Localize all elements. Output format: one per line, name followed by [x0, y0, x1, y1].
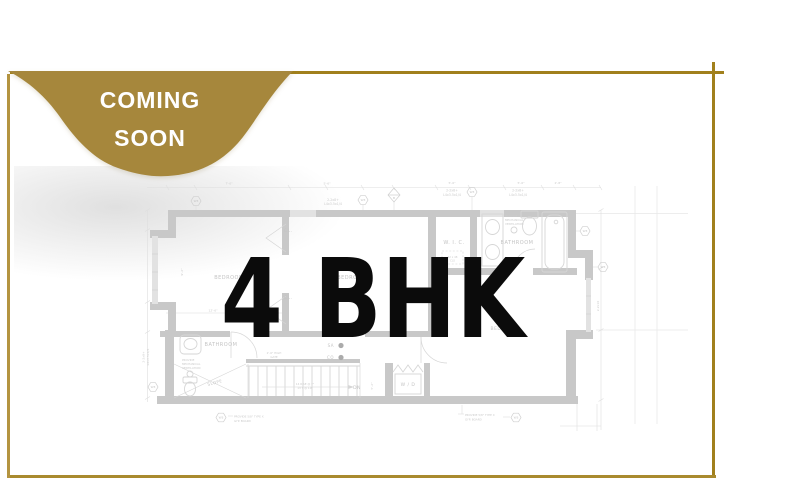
wall-tag: W3 — [219, 416, 224, 420]
gyp-note: GYP. BOARD — [234, 419, 251, 423]
beam-note: L4x3.5x1/4 — [146, 349, 150, 366]
label-closet-upper: CL. — [284, 228, 293, 234]
stair-note: 13 T @ 10" — [297, 386, 313, 390]
dim-text: 5'-6" — [323, 182, 331, 186]
coming-soon-card: W3 W3 W3 W3 W3 W3 W3 W3 B BEDROOM BEDROO… — [0, 0, 800, 500]
dim-text: 5'-6" — [517, 181, 525, 185]
wall-tag: W3 — [514, 416, 519, 420]
label-washer-dryer: W / D — [401, 382, 416, 388]
badge-line-1: COMING — [45, 85, 255, 115]
plan-grid-lines — [576, 186, 688, 424]
vent-note: VENTILATION — [182, 366, 200, 370]
dim-text: 7'-6" — [153, 304, 161, 308]
wall-tag: W3 — [583, 229, 588, 233]
beam-note: L4x3.5x1/4 — [324, 202, 342, 206]
dim-text: 5'-2" — [370, 382, 374, 390]
wall-tag: W3 — [151, 385, 156, 389]
label-slope: SLOPE — [207, 378, 223, 387]
badge-text: COMING SOON — [45, 85, 255, 153]
beam-note: L4x3.5x1/4 — [509, 193, 527, 197]
gyp-note: GYP. BOARD — [465, 417, 482, 421]
label-down: DN — [353, 385, 361, 391]
badge-line-2: SOON — [45, 123, 255, 153]
beam-note: L4x3.5x1/4 — [443, 193, 461, 197]
wall-tag: W3 — [361, 198, 366, 202]
unit-type-headline: 4 BHK — [221, 244, 526, 354]
wall-tag: W3 — [194, 199, 199, 203]
dim-text: 9'-2" — [180, 268, 184, 276]
wall-tag: W3 — [601, 265, 606, 269]
beam-tag: B — [393, 196, 395, 200]
vent-note: VENTILATION — [505, 222, 523, 226]
beam-note-right: 2-2x10 — [596, 301, 600, 312]
dim-text: 5'-6" — [448, 181, 456, 185]
dim-text: 12'-6" — [208, 309, 218, 313]
wall-tag: W3 — [470, 190, 475, 194]
dim-text: 2'-8" — [554, 181, 562, 185]
beam-note: 2-2x8+ — [142, 351, 146, 363]
